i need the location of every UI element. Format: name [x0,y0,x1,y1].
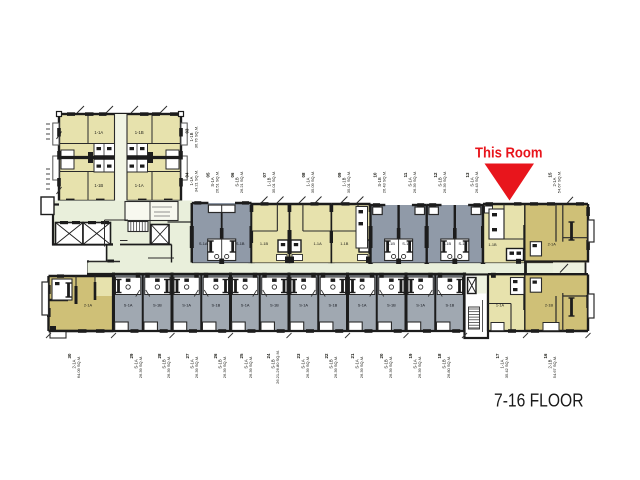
svg-text:S-1B: S-1B [270,303,279,308]
svg-text:1-1A: 1-1A [313,241,322,246]
svg-text:S-1B: S-1B [387,303,396,308]
svg-text:26.39 SQ.M.: 26.39 SQ.M. [166,356,171,378]
svg-text:26.43 SQ.M.: 26.43 SQ.M. [381,171,386,193]
svg-text:This Room: This Room [475,145,543,162]
svg-text:26.39 SQ.M.: 26.39 SQ.M. [388,356,393,378]
svg-text:1-1B: 1-1B [488,242,497,247]
svg-text:1-1A: 1-1A [94,130,103,135]
svg-text:7-16 FLOOR: 7-16 FLOOR [494,390,584,411]
svg-text:S-1B: S-1B [236,241,245,246]
svg-text:2-1A: 2-1A [84,303,93,308]
svg-text:35.42 SQ.M.: 35.42 SQ.M. [504,356,509,378]
svg-text:19: 19 [408,353,413,358]
svg-text:26: 26 [213,353,218,358]
svg-text:54.67 SQ.M.: 54.67 SQ.M. [556,171,561,193]
svg-text:15: 15 [548,172,553,177]
svg-text:26.51 SQ.M.: 26.51 SQ.M. [214,171,219,193]
svg-text:35.01 SQ.M.: 35.01 SQ.M. [346,171,351,193]
svg-text:05: 05 [206,172,211,177]
svg-text:1-1B: 1-1B [135,130,144,135]
svg-text:11: 11 [403,172,408,177]
svg-text:34.21 SQ.M.: 34.21 SQ.M. [193,170,198,192]
svg-text:26.80 SQ.M.: 26.80 SQ.M. [446,356,451,378]
svg-text:36.76 SQ.M.: 36.76 SQ.M. [193,126,198,148]
svg-text:35.09 SQ.M.: 35.09 SQ.M. [310,171,315,193]
svg-text:10: 10 [373,172,378,177]
svg-text:25: 25 [239,353,244,358]
svg-text:06: 06 [230,172,235,177]
svg-text:S-1B: S-1B [212,303,221,308]
svg-text:26.39 SQ.M.: 26.39 SQ.M. [222,356,227,378]
svg-text:35.01 SQ.M.: 35.01 SQ.M. [271,171,276,193]
svg-text:26.39 SQ.M.: 26.39 SQ.M. [442,171,447,193]
svg-text:S-1A: S-1A [299,303,308,308]
svg-text:1-1B: 1-1B [94,183,103,188]
svg-text:22: 22 [324,353,329,358]
svg-text:S-1B: S-1B [442,241,451,246]
svg-text:18: 18 [437,353,442,358]
svg-text:26.21-26.80 SQ.M.: 26.21-26.80 SQ.M. [275,350,280,384]
svg-text:26.39 SQ.M.: 26.39 SQ.M. [305,356,310,378]
svg-text:26.39 SQ.M.: 26.39 SQ.M. [359,356,364,378]
svg-text:1-1B: 1-1B [260,241,269,246]
svg-text:S-1A: S-1A [402,241,411,246]
svg-text:28: 28 [157,353,162,358]
svg-text:12: 12 [433,172,438,177]
svg-text:30: 30 [67,353,72,358]
svg-text:26.39 SQ.M.: 26.39 SQ.M. [194,356,199,378]
svg-text:26.39 SQ.M.: 26.39 SQ.M. [417,356,422,378]
svg-text:S-1A: S-1A [124,303,133,308]
svg-text:09: 09 [337,172,342,177]
svg-text:29: 29 [129,353,134,358]
svg-text:1-1A: 1-1A [496,303,505,308]
svg-text:21: 21 [350,353,355,358]
svg-text:64.09 SQ.M.: 64.09 SQ.M. [76,356,81,378]
svg-text:27: 27 [185,353,190,358]
svg-text:26.39 SQ.M.: 26.39 SQ.M. [412,171,417,193]
svg-text:16: 16 [543,353,548,358]
svg-text:S-1B: S-1B [153,303,162,308]
svg-text:S-1A: S-1A [199,241,208,246]
svg-text:26.21 SQ.M.: 26.21 SQ.M. [239,171,244,193]
svg-text:23: 23 [296,353,301,358]
svg-text:13: 13 [465,172,470,177]
svg-text:S-1B: S-1B [329,303,338,308]
svg-text:08: 08 [301,172,306,177]
svg-text:1-1B: 1-1B [340,241,349,246]
svg-text:S-1A: S-1A [358,303,367,308]
svg-text:S-1A: S-1A [458,241,467,246]
svg-text:S-1A: S-1A [182,303,191,308]
svg-text:2-1A: 2-1A [548,242,557,247]
svg-text:26.39 SQ.M.: 26.39 SQ.M. [138,356,143,378]
svg-text:20: 20 [379,353,384,358]
svg-text:26.39 SQ.M.: 26.39 SQ.M. [333,356,338,378]
svg-text:26.43 SQ.M.: 26.43 SQ.M. [474,171,479,193]
svg-text:54.67 SQ.M.: 54.67 SQ.M. [552,356,557,378]
svg-text:1-1A: 1-1A [135,183,144,188]
svg-text:26.39 SQ.M.: 26.39 SQ.M. [248,356,253,378]
svg-text:17: 17 [495,353,500,358]
svg-text:24: 24 [266,353,271,358]
svg-text:S-1A: S-1A [416,303,425,308]
svg-text:2-1B: 2-1B [545,303,554,308]
svg-text:07: 07 [262,172,267,177]
svg-text:S-1B: S-1B [386,241,395,246]
svg-text:S-1B: S-1B [446,303,455,308]
svg-text:S-1A: S-1A [241,303,250,308]
